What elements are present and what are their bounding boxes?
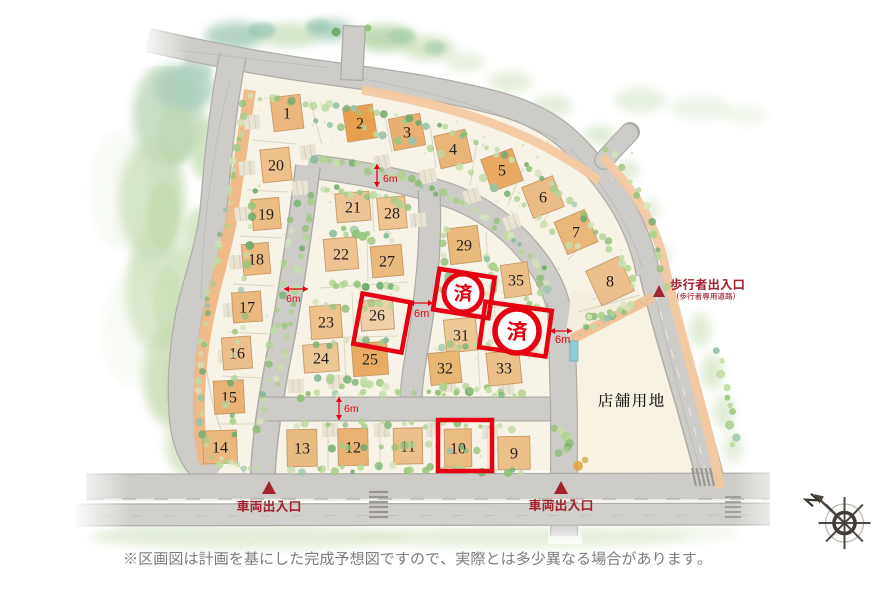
svg-text:32: 32 (437, 361, 453, 378)
svg-text:9: 9 (510, 446, 518, 463)
svg-text:29: 29 (456, 238, 472, 255)
svg-text:7: 7 (572, 225, 580, 242)
svg-text:23: 23 (318, 315, 334, 332)
svg-text:6m: 6m (555, 334, 570, 346)
svg-text:1: 1 (283, 106, 291, 123)
svg-text:24: 24 (313, 351, 329, 368)
svg-text:35: 35 (508, 273, 524, 290)
svg-text:26: 26 (369, 308, 385, 325)
svg-text:5: 5 (498, 163, 506, 180)
svg-text:6m: 6m (414, 308, 429, 320)
svg-text:6: 6 (539, 190, 547, 207)
svg-text:10: 10 (450, 441, 466, 458)
svg-text:4: 4 (449, 142, 457, 159)
svg-text:8: 8 (606, 274, 614, 291)
svg-text:25: 25 (362, 352, 378, 369)
svg-text:6m: 6m (286, 293, 301, 305)
svg-text:14: 14 (212, 440, 228, 457)
svg-text:22: 22 (333, 247, 349, 264)
svg-text:20: 20 (268, 158, 284, 175)
svg-text:21: 21 (345, 200, 361, 217)
svg-text:6m: 6m (383, 173, 398, 185)
svg-text:13: 13 (294, 441, 310, 458)
svg-text:19: 19 (258, 207, 274, 224)
svg-text:27: 27 (379, 254, 395, 271)
svg-text:33: 33 (496, 361, 512, 378)
svg-text:31: 31 (453, 328, 469, 345)
svg-text:6m: 6m (344, 403, 359, 415)
